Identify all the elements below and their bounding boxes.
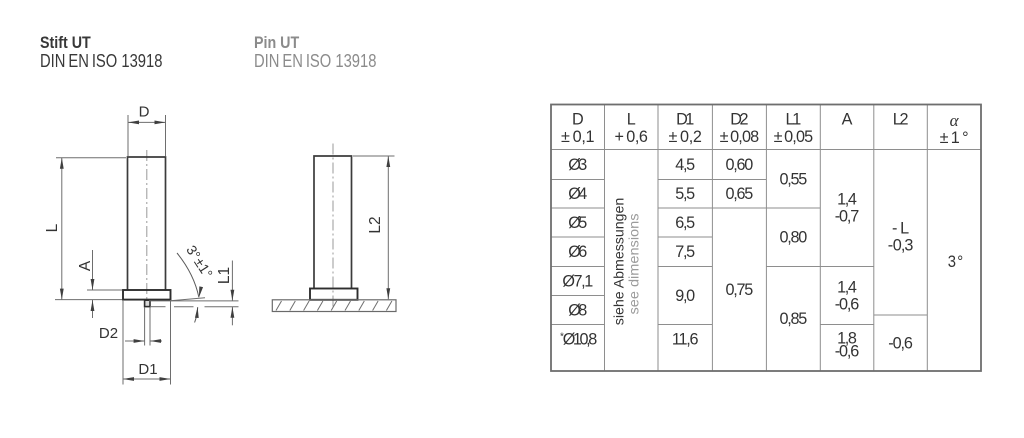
svg-text:± 1 °: ± 1 ° <box>940 129 969 147</box>
svg-text:D2: D2 <box>730 111 748 129</box>
svg-text:4,5: 4,5 <box>675 156 695 174</box>
svg-text:± 0,1: ± 0,1 <box>561 128 595 146</box>
svg-text:0,55: 0,55 <box>780 171 808 189</box>
svg-text:D2: D2 <box>99 325 118 342</box>
svg-text:D: D <box>572 111 584 129</box>
svg-text:9,0: 9,0 <box>675 287 695 305</box>
svg-text:+ 0,6: + 0,6 <box>614 128 648 146</box>
svg-text:-0,6: -0,6 <box>835 342 860 360</box>
svg-text:Ø3: Ø3 <box>568 156 587 174</box>
svg-text:D: D <box>139 104 150 121</box>
svg-text:0,60: 0,60 <box>726 156 754 174</box>
svg-text:3 °: 3 ° <box>948 253 963 271</box>
svg-text:0,80: 0,80 <box>780 229 808 247</box>
svg-text:6,5: 6,5 <box>675 214 695 232</box>
svg-text:L1: L1 <box>786 111 802 129</box>
svg-text:-0,7: -0,7 <box>835 208 860 226</box>
svg-text:L2: L2 <box>893 111 909 129</box>
svg-text:1,4: 1,4 <box>837 191 857 209</box>
svg-text:7,5: 7,5 <box>675 243 695 261</box>
svg-text:Ø5: Ø5 <box>568 214 587 232</box>
svg-text:L1: L1 <box>216 267 233 284</box>
svg-text:L: L <box>627 111 636 129</box>
svg-text:0,65: 0,65 <box>726 185 754 203</box>
svg-text:see dimensions: see dimensions <box>626 214 642 315</box>
svg-text:± 0,2: ± 0,2 <box>668 128 702 146</box>
svg-text:3° ±1°: 3° ±1° <box>183 242 216 281</box>
svg-text:L2: L2 <box>367 216 384 233</box>
svg-text:-0,6: -0,6 <box>888 335 913 353</box>
svg-text:D1: D1 <box>138 361 157 378</box>
svg-text:Ø6: Ø6 <box>568 243 587 261</box>
svg-text:- L: - L <box>892 220 909 238</box>
svg-text:Ø7,1: Ø7,1 <box>562 273 593 291</box>
svg-text:D1: D1 <box>676 111 694 129</box>
svg-text:A: A <box>77 260 94 271</box>
svg-text:0,75: 0,75 <box>726 281 754 299</box>
svg-text:5,5: 5,5 <box>675 185 695 203</box>
svg-text:Ø4: Ø4 <box>568 185 587 203</box>
svg-text:L: L <box>44 223 61 232</box>
svg-text:Ø8: Ø8 <box>568 302 587 320</box>
svg-text:-0,6: -0,6 <box>835 296 860 314</box>
svg-text:± 0,08: ± 0,08 <box>720 128 760 146</box>
svg-text:- 0,3: - 0,3 <box>888 237 914 255</box>
svg-text:A: A <box>842 111 853 129</box>
svg-text:1,4: 1,4 <box>837 279 857 297</box>
svg-text:Ø10,8: Ø10,8 <box>563 331 598 349</box>
svg-text:11,6: 11,6 <box>672 331 699 349</box>
svg-text:± 0,05: ± 0,05 <box>774 128 814 146</box>
svg-text:0,85: 0,85 <box>780 310 808 328</box>
svg-text:siehe Abmessungen: siehe Abmessungen <box>611 198 627 326</box>
svg-text:α: α <box>950 111 960 130</box>
